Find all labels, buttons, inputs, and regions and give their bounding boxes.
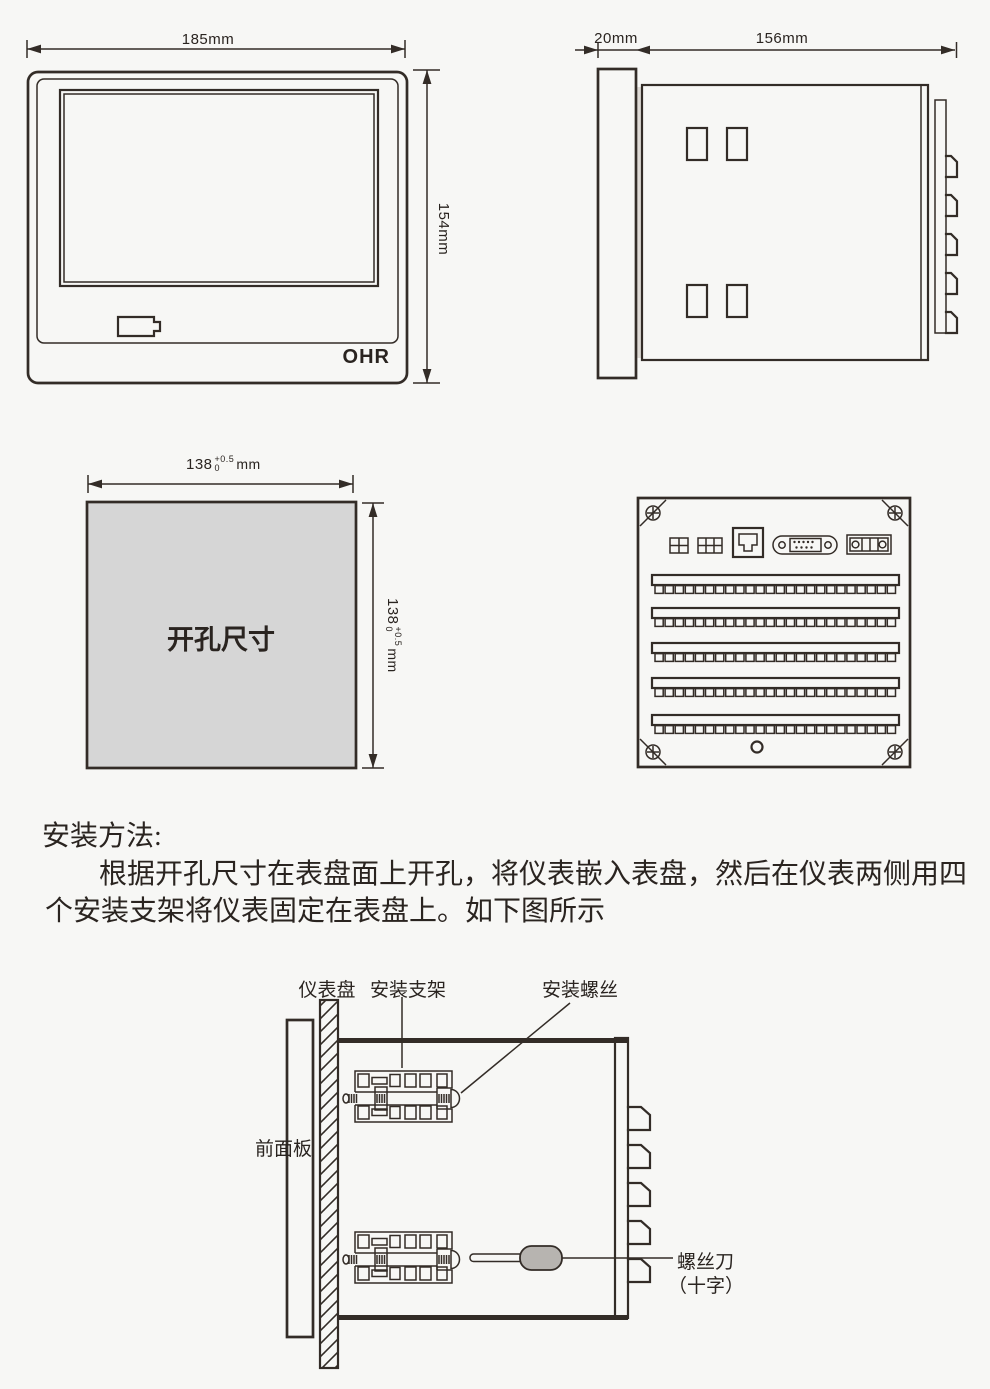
- device-outer-case: [28, 72, 407, 383]
- usb-port: [670, 538, 688, 553]
- screwdriver-type-label: （十字）: [668, 1271, 744, 1298]
- cutout-width-value: 138: [186, 456, 213, 473]
- side-body-depth-label: 156mm: [747, 30, 817, 47]
- brand-logo: OHR: [336, 346, 390, 369]
- cutout-height-value: 138: [385, 598, 402, 625]
- screw-leader-line: [461, 1003, 570, 1093]
- rear-view-drawing: [638, 498, 910, 767]
- vent-hole: [727, 128, 747, 160]
- cutout-width-dimension: [88, 475, 353, 493]
- cutout-width-label: 138 +0.5 0 mm: [186, 455, 261, 473]
- front-panel-label: 前面板: [255, 1139, 277, 1162]
- vent-hole: [687, 285, 707, 317]
- screw-label: 安装螺丝: [538, 975, 622, 1002]
- front-width-label: 185mm: [160, 31, 256, 48]
- screwdriver-handle: [520, 1246, 562, 1270]
- side-view-drawing: [575, 42, 957, 378]
- sd-slot: [698, 538, 722, 553]
- diagram-canvas: [0, 0, 990, 1389]
- side-body: [642, 85, 928, 360]
- vent-hole: [687, 128, 707, 160]
- install-text-line1: 根据开孔尺寸在表盘面上开孔，将仪表嵌入表盘，然后在仪表两侧用四: [99, 856, 967, 893]
- ethernet-port: [733, 528, 763, 557]
- mounting-bracket-top: [343, 1071, 459, 1122]
- cutout-width-unit: mm: [236, 456, 260, 472]
- bracket-label: 安装支架: [366, 975, 450, 1002]
- cutout-height-tolerance: +0.5 0: [384, 627, 402, 647]
- device-front-bezel: [37, 79, 398, 343]
- install-terminal-teeth: [628, 1107, 650, 1282]
- side-front-bezel: [598, 69, 636, 378]
- serial-db9-port: [773, 536, 837, 554]
- install-heading: 安装方法:: [42, 818, 162, 855]
- body-rear-strip: [615, 1038, 628, 1318]
- device-screen: [60, 90, 378, 286]
- side-terminal-teeth: [935, 100, 957, 333]
- front-height-label: 154mm: [435, 198, 452, 260]
- front-view-drawing: [27, 40, 440, 383]
- cutout-title: 开孔尺寸: [121, 618, 321, 657]
- ground-hole: [752, 742, 763, 753]
- rear-connectors: [670, 528, 891, 557]
- usb-cover-slot: [118, 317, 160, 336]
- mounting-bracket-bottom: [343, 1232, 459, 1283]
- manual-page: 185mm 154mm OHR 20mm 156mm 138 +0.5 0 mm…: [0, 0, 990, 1389]
- side-bezel-depth-label: 20mm: [593, 30, 639, 47]
- cutout-width-tolerance: +0.5 0: [215, 455, 235, 473]
- screwdriver: [470, 1246, 562, 1270]
- cutout-height-label: 138 +0.5 0 mm: [384, 598, 402, 673]
- terminal-strips: [652, 575, 899, 733]
- cutout-height-unit: mm: [385, 648, 401, 672]
- panel-label: 仪表盘: [296, 975, 358, 1002]
- install-text-line2: 个安装支架将仪表固定在表盘上。如下图所示: [45, 893, 605, 930]
- panel-hatched-strip: [320, 1000, 338, 1368]
- vent-hole: [727, 285, 747, 317]
- power-terminal: [847, 535, 891, 554]
- screwdriver-shaft: [470, 1254, 523, 1262]
- screwdriver-label: 螺丝刀: [677, 1247, 734, 1274]
- install-drawing: [287, 997, 673, 1368]
- cutout-height-dimension: [362, 503, 384, 768]
- front-panel-bezel: [287, 1020, 313, 1337]
